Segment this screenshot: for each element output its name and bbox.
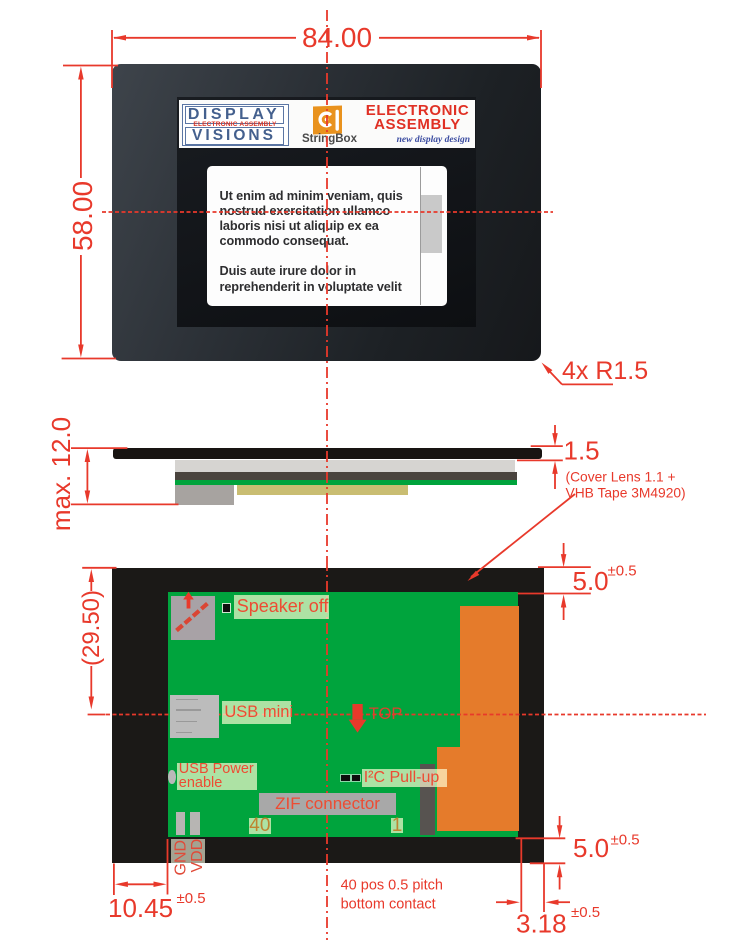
svg-text:(Cover Lens 1.1 +: (Cover Lens 1.1 +	[566, 470, 676, 485]
svg-text:58.00: 58.00	[67, 181, 98, 251]
svg-text:5.0: 5.0	[573, 566, 609, 596]
svg-text:GND: GND	[173, 840, 190, 876]
svg-text:1.5: 1.5	[564, 436, 600, 466]
svg-text:5.0: 5.0	[573, 833, 609, 863]
svg-text:4x R1.5: 4x R1.5	[562, 357, 648, 385]
svg-text:±0.5: ±0.5	[608, 563, 637, 580]
svg-text:±0.5: ±0.5	[611, 832, 640, 849]
svg-text:10.45: 10.45	[108, 893, 173, 923]
svg-text:VDD: VDD	[189, 839, 206, 873]
svg-text:±0.5: ±0.5	[571, 904, 600, 921]
svg-text:84.00: 84.00	[302, 22, 372, 53]
svg-text:3.18: 3.18	[516, 909, 567, 939]
svg-text:40 pos 0.5 pitch: 40 pos 0.5 pitch	[341, 878, 443, 894]
svg-text:bottom contact: bottom contact	[341, 897, 436, 913]
svg-text:VHB Tape 3M4920): VHB Tape 3M4920)	[566, 486, 686, 501]
svg-text:max. 12.0: max. 12.0	[46, 417, 76, 531]
svg-text:±0.5: ±0.5	[177, 890, 206, 907]
svg-text:(29.50): (29.50)	[78, 590, 105, 666]
